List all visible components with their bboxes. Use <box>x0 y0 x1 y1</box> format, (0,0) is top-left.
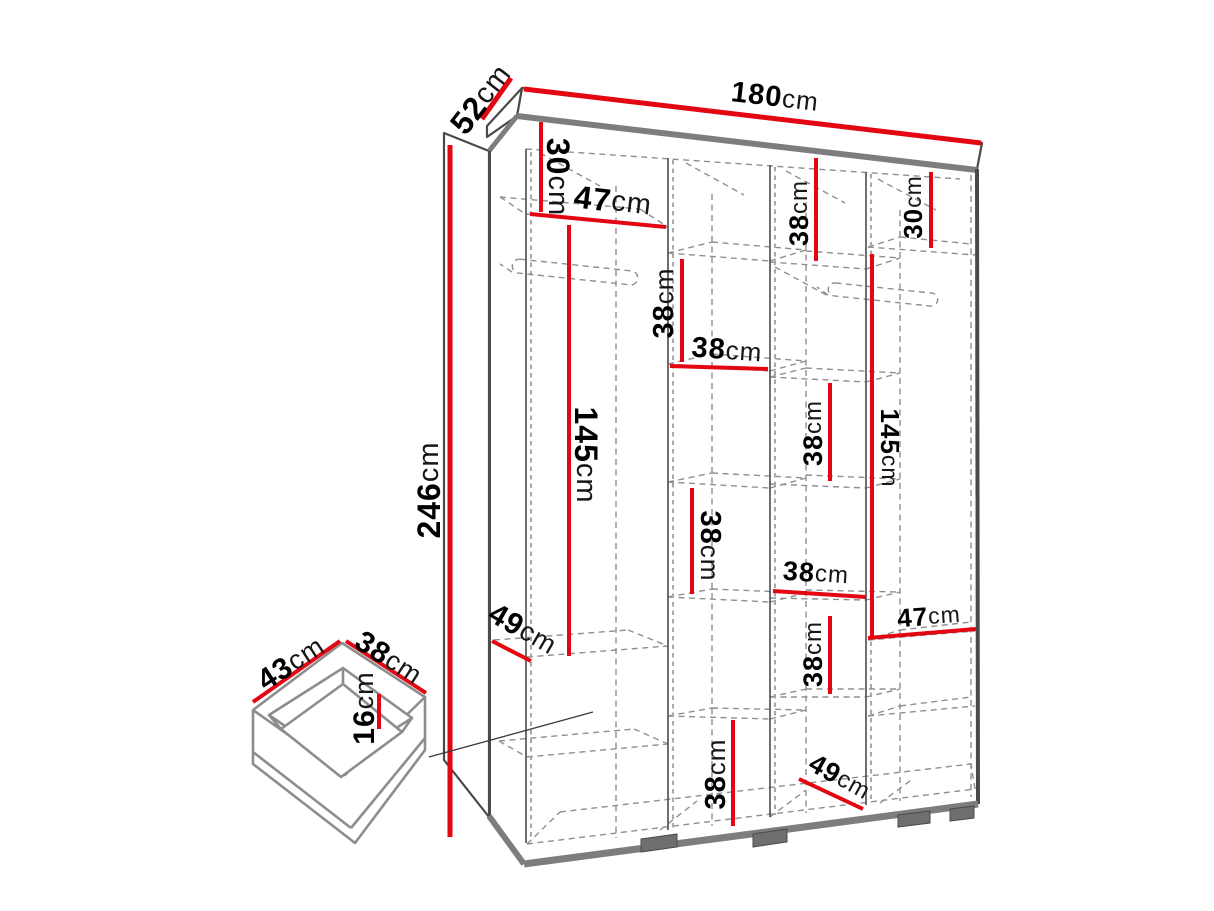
dimension-label-col1-top-section: 30cm <box>540 138 576 216</box>
dimension-label-col3-mid-section: 38cm <box>798 400 828 466</box>
dimension-label-col2-bottom-section: 38cm <box>700 739 732 810</box>
dimension-label-col2-top-section: 38cm <box>648 268 680 339</box>
dimension-label-col2-shelf-width: 38cm <box>691 332 764 369</box>
wardrobe-dimension-diagram: 52cm 180cm 246cm 30cm 47cm 145cm 49cm 38… <box>0 0 1214 911</box>
dimension-label-col3-top-section: 38cm <box>784 180 814 246</box>
dimension-label-col3-shelf-width: 38cm <box>782 556 850 591</box>
dimension-label-col2-mid-section: 38cm <box>694 511 726 582</box>
dimension-label-col4-top-section: 30cm <box>898 175 928 239</box>
dimension-label-col1-hanging-section: 145cm <box>568 406 604 503</box>
dimension-label-col3-lower-section: 38cm <box>798 621 828 687</box>
dimension-label-wardrobe-height: 246cm <box>411 441 447 538</box>
dimension-label-col4-hanging-section: 145cm <box>875 408 905 487</box>
dimension-label-drawer-height: 16cm <box>348 671 381 744</box>
